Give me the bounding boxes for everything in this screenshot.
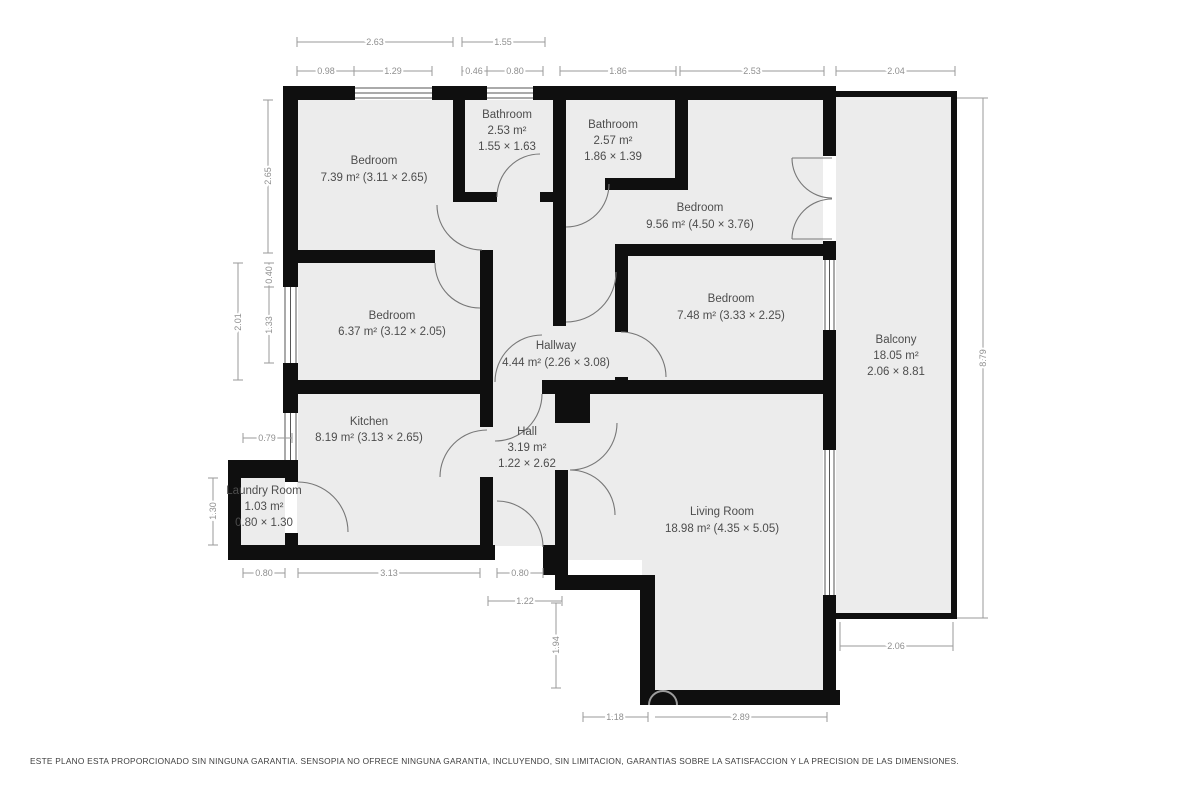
room-label-name: Hallway — [536, 340, 577, 352]
window — [823, 260, 836, 330]
wall-segment — [228, 545, 495, 560]
dimension: 1.18 — [583, 712, 648, 722]
room-label-name: Living Room — [690, 506, 754, 518]
wall-segment — [555, 394, 590, 423]
dimension: 1.86 — [560, 66, 676, 76]
dim-label: 3.13 — [380, 568, 398, 578]
dim-label: 1.18 — [606, 712, 624, 722]
wall-segment — [453, 192, 497, 202]
room-label-area: 7.48 m² (3.33 × 2.25) — [677, 310, 785, 322]
room-label-name: Laundry Room — [226, 485, 301, 497]
room-label-name: Hall — [517, 426, 537, 438]
balcony-door-opening — [823, 156, 836, 241]
wall-segment — [823, 595, 836, 705]
dimension: 0.40 — [264, 263, 274, 287]
dimension: 2.53 — [680, 66, 824, 76]
room-label-size: 1.22 × 2.62 — [498, 458, 556, 470]
wall-segment — [283, 250, 435, 263]
room-label-name: Bedroom — [708, 293, 755, 305]
room-label-name: Kitchen — [350, 416, 388, 428]
wall-segment — [480, 250, 493, 382]
wall-segment — [823, 86, 836, 156]
wall-segment — [283, 263, 298, 287]
room-label-name: Bedroom — [369, 310, 416, 322]
dimension: 3.13 — [298, 568, 480, 578]
dimension: 1.29 — [354, 66, 432, 76]
room-label-area: 9.56 m² (4.50 × 3.76) — [646, 219, 754, 231]
wall-segment — [540, 192, 553, 202]
dimension: 8.79 — [957, 98, 988, 618]
dim-label: 2.63 — [366, 37, 384, 47]
room-label-area: 18.98 m² (4.35 × 5.05) — [665, 523, 779, 535]
floor-plan-page: 2.63 1.55 0.98 1.29 0.46 0.80 1.86 2.53 — [0, 0, 1200, 800]
dim-label: 0.40 — [264, 266, 274, 284]
room-label-name: Bathroom — [482, 109, 532, 121]
room-label-size: 0.80 × 1.30 — [235, 517, 293, 529]
wall-balcony-right — [951, 91, 957, 619]
dim-label: 1.94 — [551, 636, 561, 654]
dim-label: 8.79 — [978, 349, 988, 367]
dim-label: 2.89 — [732, 712, 750, 722]
room-label-name: Bedroom — [677, 202, 724, 214]
room-label-name: Bedroom — [351, 155, 398, 167]
dim-label: 2.04 — [887, 66, 905, 76]
dimension: 0.80 — [497, 568, 543, 578]
wall-segment — [283, 380, 493, 394]
dim-label: 0.79 — [258, 433, 276, 443]
dimension: 2.89 — [655, 712, 827, 722]
room-label-size: 1.86 × 1.39 — [584, 151, 642, 163]
wall-segment — [640, 575, 655, 705]
window — [487, 86, 533, 100]
wall-segment — [285, 533, 298, 545]
window — [283, 413, 298, 460]
dimension: 2.63 — [297, 37, 453, 47]
wall-segment — [453, 86, 465, 198]
dim-label: 2.06 — [887, 641, 905, 651]
wall-segment — [553, 86, 566, 326]
wall-balcony-bottom — [836, 613, 957, 619]
floor-plan-svg: 2.63 1.55 0.98 1.29 0.46 0.80 1.86 2.53 — [0, 0, 1200, 800]
dim-label: 1.55 — [494, 37, 512, 47]
room-label-area: 8.19 m² (3.13 × 2.65) — [315, 432, 423, 444]
window — [283, 287, 298, 363]
dim-label: 1.30 — [208, 502, 218, 520]
wall-segment — [615, 244, 827, 256]
dim-label: 1.22 — [516, 596, 534, 606]
room-label-area: 4.44 m² (2.26 × 3.08) — [502, 357, 610, 369]
dim-label: 1.33 — [264, 316, 274, 334]
wall-segment — [553, 86, 836, 100]
dimension: 2.06 — [840, 622, 953, 651]
dimension: 2.65 — [263, 100, 273, 253]
dim-label: 2.65 — [263, 167, 273, 185]
room-label-size: 1.55 × 1.63 — [478, 141, 536, 153]
dimension: 1.33 — [264, 287, 274, 363]
dim-label: 1.29 — [384, 66, 402, 76]
dimension: 2.01 — [233, 263, 243, 380]
wall-segment — [285, 474, 298, 482]
room-label-area: 6.37 m² (3.12 × 2.05) — [338, 326, 446, 338]
wall-segment — [480, 394, 493, 427]
wall-segment — [615, 244, 628, 332]
dim-label: 0.80 — [511, 568, 529, 578]
dimension: 2.04 — [836, 66, 955, 76]
room-label-name: Bathroom — [588, 119, 638, 131]
room-label-area: 1.03 m² — [245, 501, 284, 513]
room-label-area: 2.57 m² — [594, 135, 633, 147]
dimension: 0.98 — [297, 66, 354, 76]
window — [823, 450, 836, 595]
dim-label: 0.98 — [317, 66, 335, 76]
wall-segment — [675, 86, 688, 190]
room-label-name: Balcony — [876, 334, 917, 346]
wall-segment — [283, 86, 298, 253]
room-label-size: 2.06 × 8.81 — [867, 366, 925, 378]
window — [355, 86, 432, 100]
dimension: 0.80 — [243, 568, 285, 578]
dim-label: 0.46 — [465, 66, 483, 76]
wall-balcony-top — [836, 91, 957, 97]
wall-segment — [542, 380, 827, 394]
dimension: 0.80 — [487, 66, 543, 76]
room-label-area: 7.39 m² (3.11 × 2.65) — [321, 172, 428, 184]
dimension: 0.46 — [462, 66, 487, 76]
void-entrance — [495, 546, 543, 560]
dimension: 1.55 — [462, 37, 545, 47]
wall-segment — [543, 545, 567, 575]
wall-segment — [480, 477, 493, 545]
dim-label: 0.80 — [506, 66, 524, 76]
room-label-area: 2.53 m² — [488, 125, 527, 137]
room-label-area: 18.05 m² — [873, 350, 919, 362]
dim-label: 1.86 — [609, 66, 627, 76]
disclaimer-text: ESTE PLANO ESTA PROPORCIONADO SIN NINGUN… — [30, 756, 959, 766]
room-label-area: 3.19 m² — [508, 442, 547, 454]
dim-label: 0.80 — [255, 568, 273, 578]
dim-label: 2.53 — [743, 66, 761, 76]
dimension: 1.30 — [208, 478, 218, 545]
dim-label: 2.01 — [233, 313, 243, 331]
